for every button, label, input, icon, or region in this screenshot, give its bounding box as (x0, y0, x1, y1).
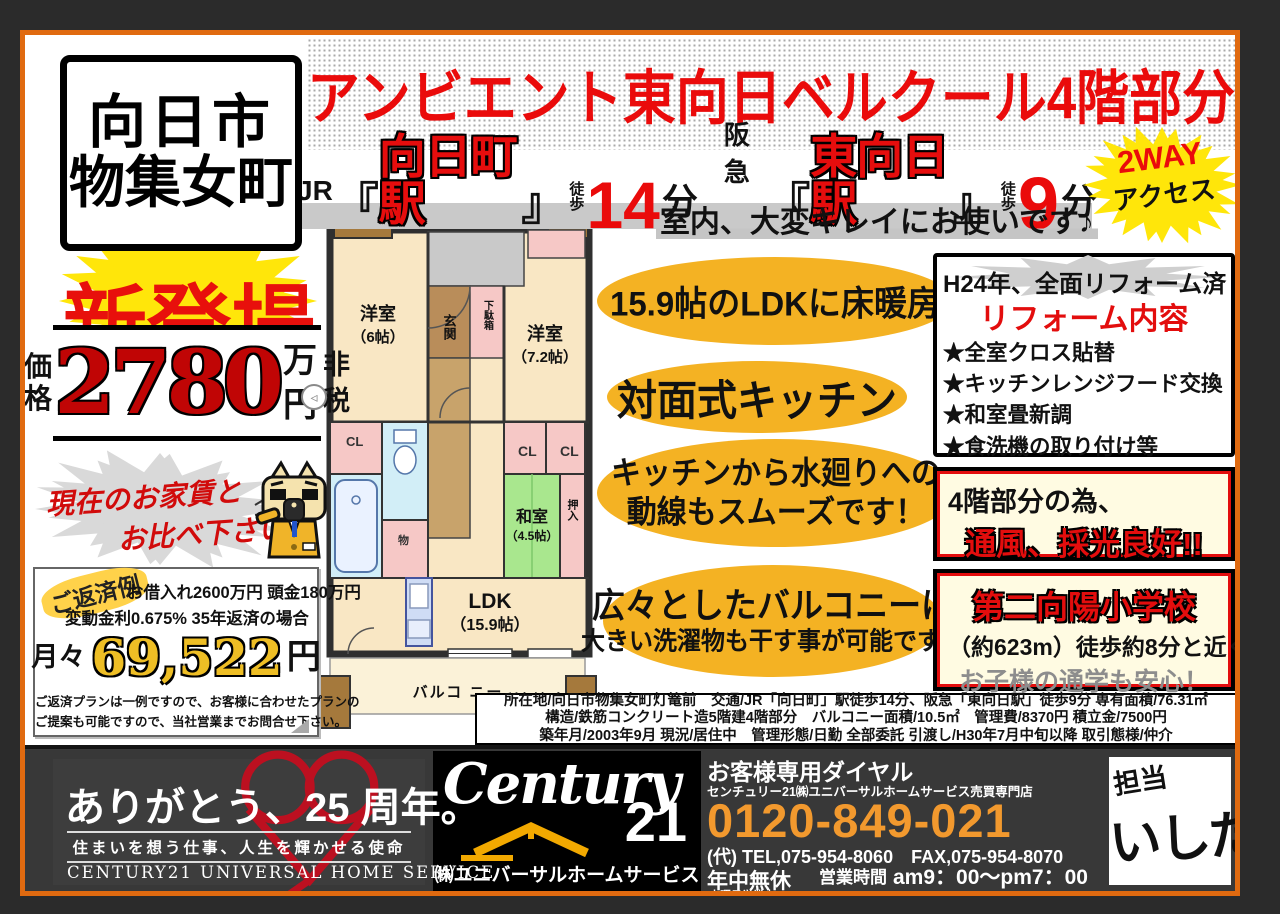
price-unit: 万 円 (283, 339, 317, 427)
genkan-label: 玄関 (442, 313, 457, 341)
feature-text: 大きい洗濯物も干す事が可能です！ (581, 625, 965, 658)
reform-item: ★食洗機の取り付け等 (943, 432, 1225, 463)
repayment-line1: お借入れ2600万円 頭金180万円 (127, 579, 361, 603)
folded-corner (291, 719, 309, 733)
ldk-size: （15.9帖） (450, 615, 529, 634)
room-label-west1: 洋室 (360, 303, 396, 324)
ventilation-line1: 4階部分の為、 (948, 480, 1220, 519)
flyer-page: 向日市 物集女町 アンビエント東向日ベルクール4階部分 JR 『 向日町駅 』 … (0, 0, 1280, 914)
feature-counter-kitchen: 対面式キッチン (607, 361, 907, 433)
reform-item: ★全室クロス貼替 (943, 338, 1225, 369)
price-label-char: 価 (24, 351, 52, 383)
staff-name: いしだ (1107, 793, 1234, 876)
reform-title: リフォーム内容 (943, 302, 1225, 338)
feature-text: 動線もスムーズです！ (627, 492, 926, 533)
cl-label: CL (560, 443, 579, 459)
monthly-prefix: 月々 (31, 635, 85, 674)
property-details-box: 所在地/向日市物集女町灯篭前 交通/JR「向日町」駅徒歩14分、阪急「東向日駅」… (475, 693, 1237, 745)
ventilation-box: 4階部分の為、 通風、採光良好!! (933, 467, 1235, 561)
price-label-char: 格 (24, 383, 52, 415)
station1-name: 向日町駅 (379, 133, 522, 227)
storage (382, 520, 428, 578)
century21-logo-21: 21 (625, 789, 687, 854)
feature-floor-heating: 15.9帖のLDKに床暖房 (597, 257, 953, 345)
ventilation-line2: 通風、採光良好!! (948, 519, 1220, 564)
reform-header: H24年、全面リフォーム済 (943, 261, 1225, 302)
school-box-inner: 第二向陽小学校 （約623m）徒歩約8分と近く お子様の通学も安心！ (937, 573, 1231, 687)
price-tax-char: 非 (323, 347, 350, 383)
feature-kitchen-flow: キッチンから水廻りへの 動線もスムーズです！ (597, 439, 955, 547)
condition-note-text: 室内、大変キレイにお使いです♪ (656, 206, 1098, 239)
feature-text: 広々としたバルコニーは (592, 584, 954, 627)
storage-label: 物 (398, 533, 409, 547)
repayment-example-box: ご返済例 お借入れ2600万円 頭金180万円 変動金利0.675% 35年返済… (33, 567, 319, 737)
school-name: 第二向陽小学校 (948, 582, 1220, 628)
feature-text: キッチンから水廻りへの (611, 453, 941, 494)
details-line3: 築年月/2003年9月 現況/居住中 管理形態/日勤 全部委託 引渡し/H30年… (477, 728, 1235, 745)
getabako-label: 下駄箱 (482, 300, 494, 331)
century21-roof-icon (461, 819, 601, 861)
station1-company: JR (297, 175, 333, 207)
contact-panel: お客様専用ダイヤル センチュリー21㈱ユニバーサルホームサービス売買専門店 01… (707, 751, 1107, 893)
phone-number: 0120-849-021 (707, 793, 1012, 848)
room-size-west1: （6帖） (351, 328, 404, 346)
reform-header-text: H24年、全面リフォーム済 (943, 271, 1226, 298)
floor-plan: 洋室 （6帖） 玄関 下駄箱 洋室 （7.2帖） CL CL CL 物 和室 （… (318, 222, 601, 742)
price-unit-char: 万 (283, 339, 317, 383)
tax-note-icon: ◃ (301, 384, 327, 410)
reform-item: ★キッチンレンジフード交換 (943, 369, 1225, 400)
oshiire-label: 押入 (566, 498, 579, 522)
reform-item: ★和室畳新調 (943, 400, 1225, 431)
condition-note: 室内、大変キレイにお使いです♪ (637, 197, 1117, 243)
anniversary-panel: ありがとう、25 周年。 住まいを想う仕事、人生を輝かせる使命 CENTURY2… (53, 759, 425, 885)
details-line1: 所在地/向日市物集女町灯篭前 交通/JR「向日町」駅徒歩14分、阪急「東向日駅」… (477, 693, 1235, 710)
price-block: 価 格 2780 万 円 非 税 ◃ (53, 325, 321, 441)
monthly-unit: 円 (287, 629, 321, 678)
location-box: 向日市 物集女町 (60, 55, 302, 251)
walk-char: 徒 (1001, 182, 1016, 198)
anniversary-slogan: 住まいを想う仕事、人生を輝かせる使命 (67, 831, 411, 863)
station2-company: 阪急 (724, 115, 764, 189)
feature-balcony: 広々としたバルコニーは 大きい洗濯物も干す事が可能です！ (603, 565, 943, 677)
monthly-value: 69,522 (91, 635, 282, 680)
cl-label: CL (346, 434, 363, 449)
school-distance: （約623m）徒歩約8分と近く (948, 628, 1220, 662)
walk-char: 徒 (569, 182, 584, 198)
price-tax-note: 非 税 (323, 347, 350, 420)
room-label-west2: 洋室 (527, 323, 563, 344)
repayment-note2: ご提案も可能ですので、当社営業までお問合せ下さい。 (35, 711, 317, 730)
monthly-payment-row: 月々 69,522 円 (35, 629, 317, 680)
anniversary-company-en: CENTURY21 UNIVERSAL HOME SERVICE (67, 863, 411, 882)
station1-walk-label: 徒 歩 (569, 182, 584, 214)
feature-text: 対面式キッチン (617, 367, 897, 428)
feature-text: 15.9帖のLDKに床暖房 (610, 276, 940, 326)
washitsu-size: （4.5帖） (506, 528, 559, 543)
flyer-frame: 向日市 物集女町 アンビエント東向日ベルクール4階部分 JR 『 向日町駅 』 … (20, 30, 1240, 896)
mascot-dog-illustration (253, 455, 335, 573)
oshiire-closet (560, 474, 585, 578)
ldk-label: LDK (468, 590, 511, 613)
staff-box: 担当 いしだ (1109, 757, 1231, 885)
details-line2: 構造/鉄筋コンクリート造5階建4階部分 バルコニー面積/10.5㎡ 管理費/83… (477, 710, 1235, 727)
school-box: 第二向陽小学校 （約623m）徒歩約8分と近く お子様の通学も安心！ (933, 569, 1235, 691)
reform-box: H24年、全面リフォーム済 リフォーム内容 ★全室クロス貼替 ★キッチンレンジフ… (933, 253, 1235, 457)
price-label: 価 格 (24, 351, 52, 415)
repayment-note1: ご返済プランは一例ですので、お客様に合わせたプランの (35, 691, 317, 710)
location-town: 物集女町 (69, 154, 293, 213)
bracket-open: 『 (335, 183, 379, 227)
hours-label: 営業時間 (819, 863, 887, 888)
footer-band: ありがとう、25 周年。 住まいを想う仕事、人生を輝かせる使命 CENTURY2… (25, 745, 1235, 891)
ventilation-box-inner: 4階部分の為、 通風、採光良好!! (937, 471, 1231, 557)
walk-char: 歩 (569, 197, 584, 213)
price-value: 2780 (54, 343, 279, 422)
location-city: 向日市 (88, 93, 274, 154)
anniversary-title: ありがとう、25 周年。 (65, 775, 481, 833)
open-wednesday-note: 水曜日営業中 (709, 887, 775, 896)
cl-label: CL (518, 443, 537, 459)
bracket-close: 』 (521, 183, 565, 227)
room-size-west2: （7.2帖） (512, 348, 578, 366)
price-tax-char: 税 (323, 383, 350, 419)
license-number: 京都府知事免許(6)第9738号 (857, 887, 1013, 896)
staff-label: 担当 (1110, 755, 1169, 802)
repayment-line2: 変動金利0.675% 35年返済の場合 (65, 605, 309, 629)
washitsu-label: 和室 (516, 507, 548, 526)
